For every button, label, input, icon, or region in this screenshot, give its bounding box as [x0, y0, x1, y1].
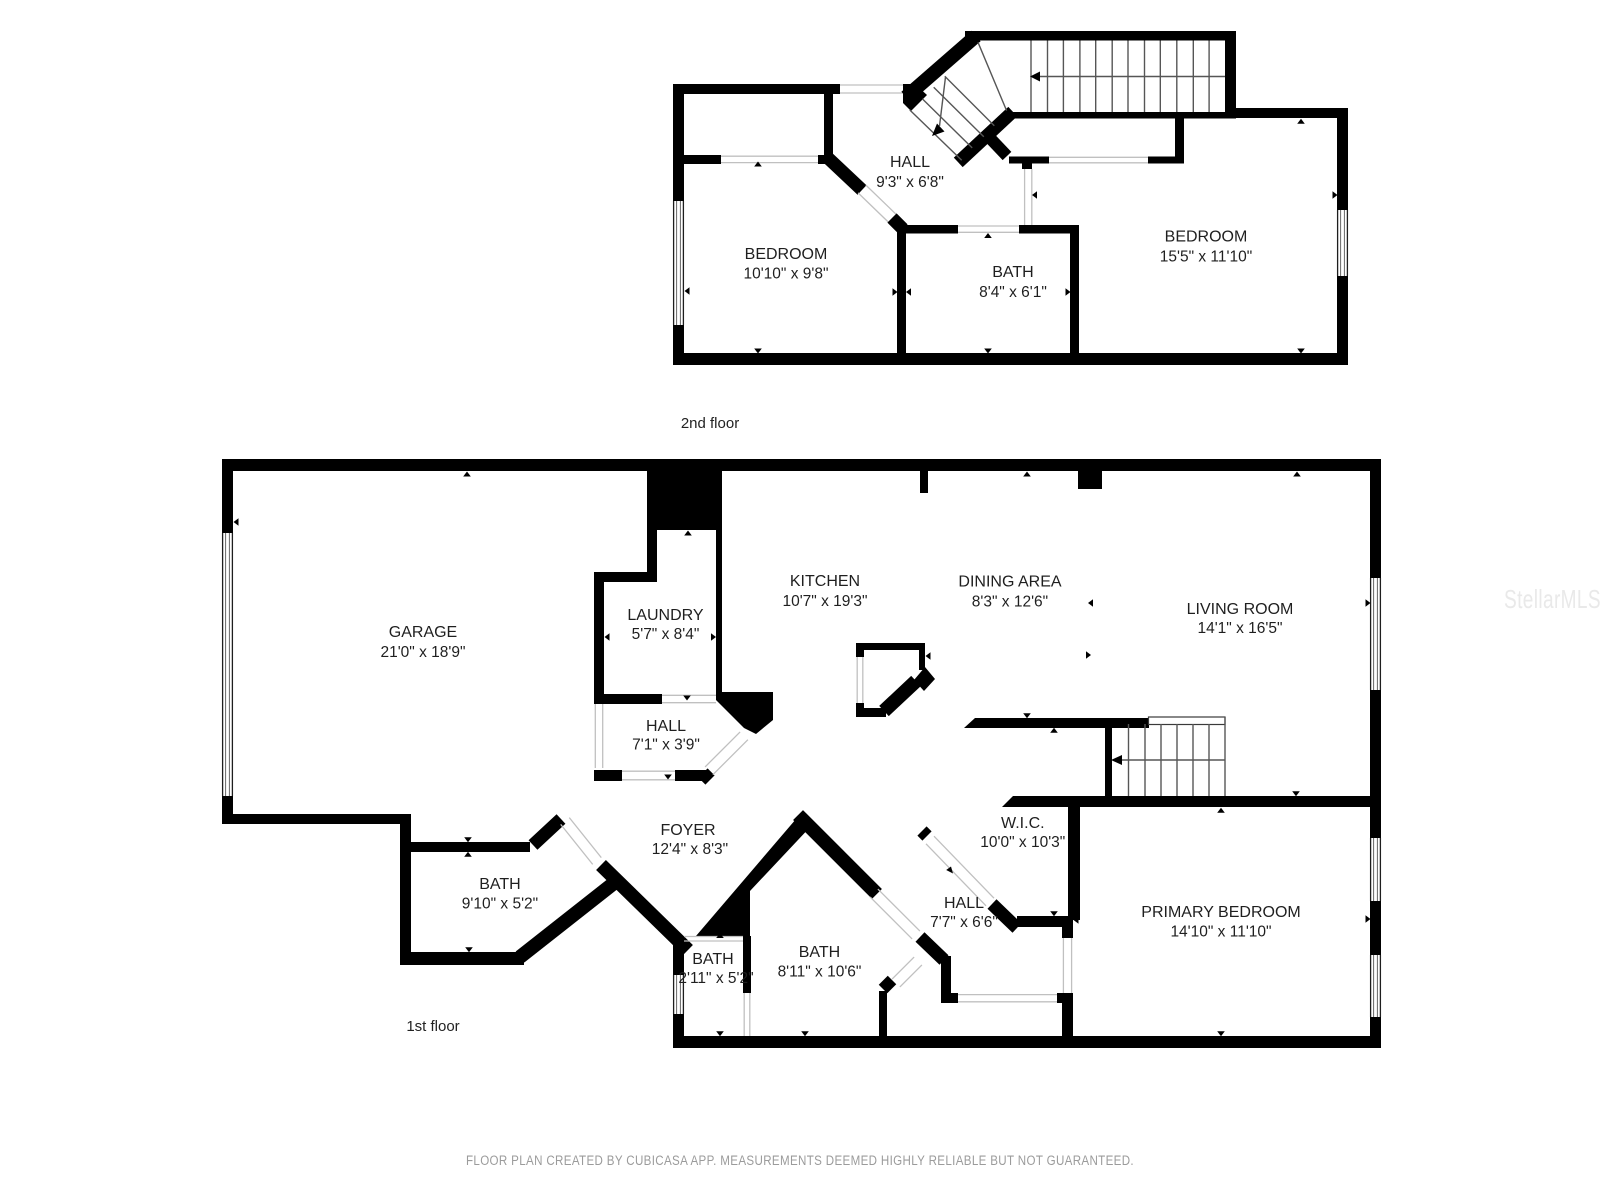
- svg-text:10'10" x 9'8": 10'10" x 9'8": [743, 266, 828, 283]
- svg-text:9'3" x 6'8": 9'3" x 6'8": [876, 174, 944, 191]
- svg-text:GARAGE: GARAGE: [389, 624, 457, 641]
- svg-text:12'4" x 8'3": 12'4" x 8'3": [652, 841, 728, 858]
- svg-text:BATH: BATH: [692, 951, 733, 968]
- svg-text:BATH: BATH: [799, 944, 840, 961]
- svg-text:14'10" x 11'10": 14'10" x 11'10": [1170, 924, 1271, 941]
- svg-text:7'7" x 6'6": 7'7" x 6'6": [930, 914, 998, 931]
- svg-text:9'10" x 5'2": 9'10" x 5'2": [462, 896, 538, 913]
- svg-text:HALL: HALL: [890, 154, 930, 171]
- svg-text:FOYER: FOYER: [660, 822, 715, 839]
- svg-text:PRIMARY BEDROOM: PRIMARY BEDROOM: [1141, 904, 1300, 921]
- svg-text:W.I.C.: W.I.C.: [1001, 815, 1045, 832]
- svg-text:7'1" x 3'9": 7'1" x 3'9": [632, 737, 700, 754]
- svg-text:21'0" x 18'9": 21'0" x 18'9": [380, 644, 465, 661]
- svg-text:StellarMLS: StellarMLS: [1504, 584, 1600, 614]
- svg-text:BATH: BATH: [992, 264, 1033, 281]
- svg-text:FLOOR PLAN CREATED BY CUBICASA: FLOOR PLAN CREATED BY CUBICASA APP. MEAS…: [466, 1153, 1134, 1168]
- svg-text:8'11" x 10'6": 8'11" x 10'6": [778, 964, 862, 981]
- svg-text:8'3" x 12'6": 8'3" x 12'6": [972, 594, 1048, 611]
- svg-text:LAUNDRY: LAUNDRY: [627, 607, 704, 624]
- svg-text:15'5" x 11'10": 15'5" x 11'10": [1160, 249, 1252, 266]
- svg-text:HALL: HALL: [646, 718, 686, 735]
- svg-text:14'1" x 16'5": 14'1" x 16'5": [1197, 620, 1282, 637]
- svg-text:5'7" x 8'4": 5'7" x 8'4": [632, 626, 700, 643]
- svg-text:10'7" x 19'3": 10'7" x 19'3": [782, 593, 867, 610]
- svg-text:2'11" x 5'2": 2'11" x 5'2": [678, 970, 753, 987]
- svg-text:8'4" x 6'1": 8'4" x 6'1": [979, 284, 1047, 301]
- svg-text:LIVING ROOM: LIVING ROOM: [1187, 601, 1294, 618]
- svg-text:DINING AREA: DINING AREA: [958, 574, 1061, 591]
- svg-text:KITCHEN: KITCHEN: [790, 573, 860, 590]
- svg-text:1st floor: 1st floor: [406, 1018, 459, 1035]
- svg-text:BEDROOM: BEDROOM: [745, 246, 828, 263]
- svg-text:10'0" x 10'3": 10'0" x 10'3": [980, 834, 1065, 851]
- svg-text:HALL: HALL: [944, 895, 984, 912]
- svg-text:BATH: BATH: [479, 876, 520, 893]
- svg-text:2nd floor: 2nd floor: [681, 415, 739, 432]
- svg-text:BEDROOM: BEDROOM: [1165, 229, 1248, 246]
